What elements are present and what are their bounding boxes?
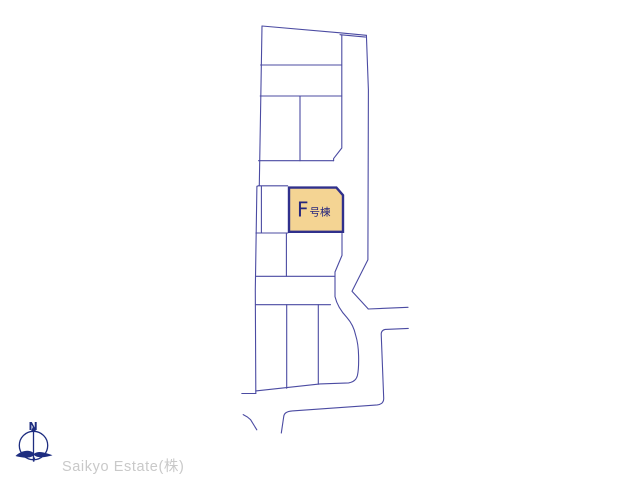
- boundary-top: [262, 26, 366, 35]
- road-south-left-edge: [243, 415, 257, 430]
- plot-map: F 号棟 N: [0, 0, 640, 480]
- parcel-f-letter: F: [297, 198, 309, 222]
- boundary-right-curve: [256, 233, 359, 391]
- parcel-f[interactable]: F 号棟: [289, 188, 343, 232]
- upper-block-right-edge: [334, 35, 342, 161]
- road-branch-top: [368, 307, 408, 309]
- compass: N: [16, 420, 53, 462]
- boundary-right: [352, 35, 368, 309]
- site-plan-page: F 号棟 N Saikyo Estate(株): [0, 0, 640, 480]
- parcel-f-suffix: 号棟: [310, 206, 331, 219]
- company-watermark: Saikyo Estate(株): [62, 455, 184, 476]
- road-branch-and-south-edge: [281, 328, 408, 433]
